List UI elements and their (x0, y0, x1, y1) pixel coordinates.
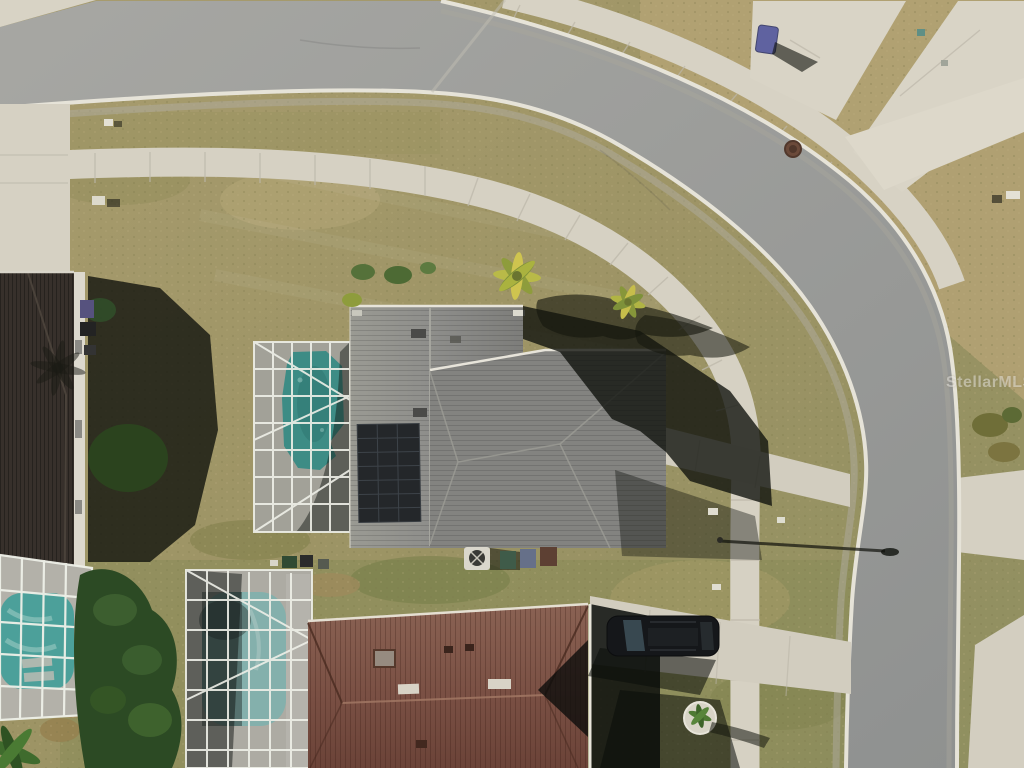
roof-vent (398, 684, 419, 695)
solar-panel-array (357, 423, 421, 522)
shrub (384, 266, 412, 284)
rear-window (700, 622, 714, 650)
trash-bin-green (500, 551, 516, 569)
utility-marker (92, 196, 105, 205)
trash-bin-dark (80, 322, 96, 336)
utility-marker (917, 29, 925, 36)
utility-marker (104, 119, 113, 126)
aerial-photo: StellarMLS (0, 0, 1024, 768)
palmetto (988, 442, 1020, 462)
right-driveway (957, 470, 1024, 560)
shrub (420, 262, 436, 274)
aerial-photo-canvas (0, 0, 1024, 768)
bottom-pool-enclosure (186, 555, 329, 768)
chimney (374, 650, 395, 667)
shrub (351, 264, 375, 280)
trash-bin-purple (80, 300, 94, 318)
roof-vent (413, 408, 427, 417)
center-pool-enclosure (254, 342, 350, 532)
tree (88, 424, 168, 492)
roof-vent (411, 329, 426, 338)
utility-marker (708, 508, 718, 515)
trash-bin-brown (540, 547, 557, 566)
streetlight-base (717, 537, 723, 543)
trash-bin-blue (520, 549, 536, 568)
roof-vent (488, 679, 511, 689)
